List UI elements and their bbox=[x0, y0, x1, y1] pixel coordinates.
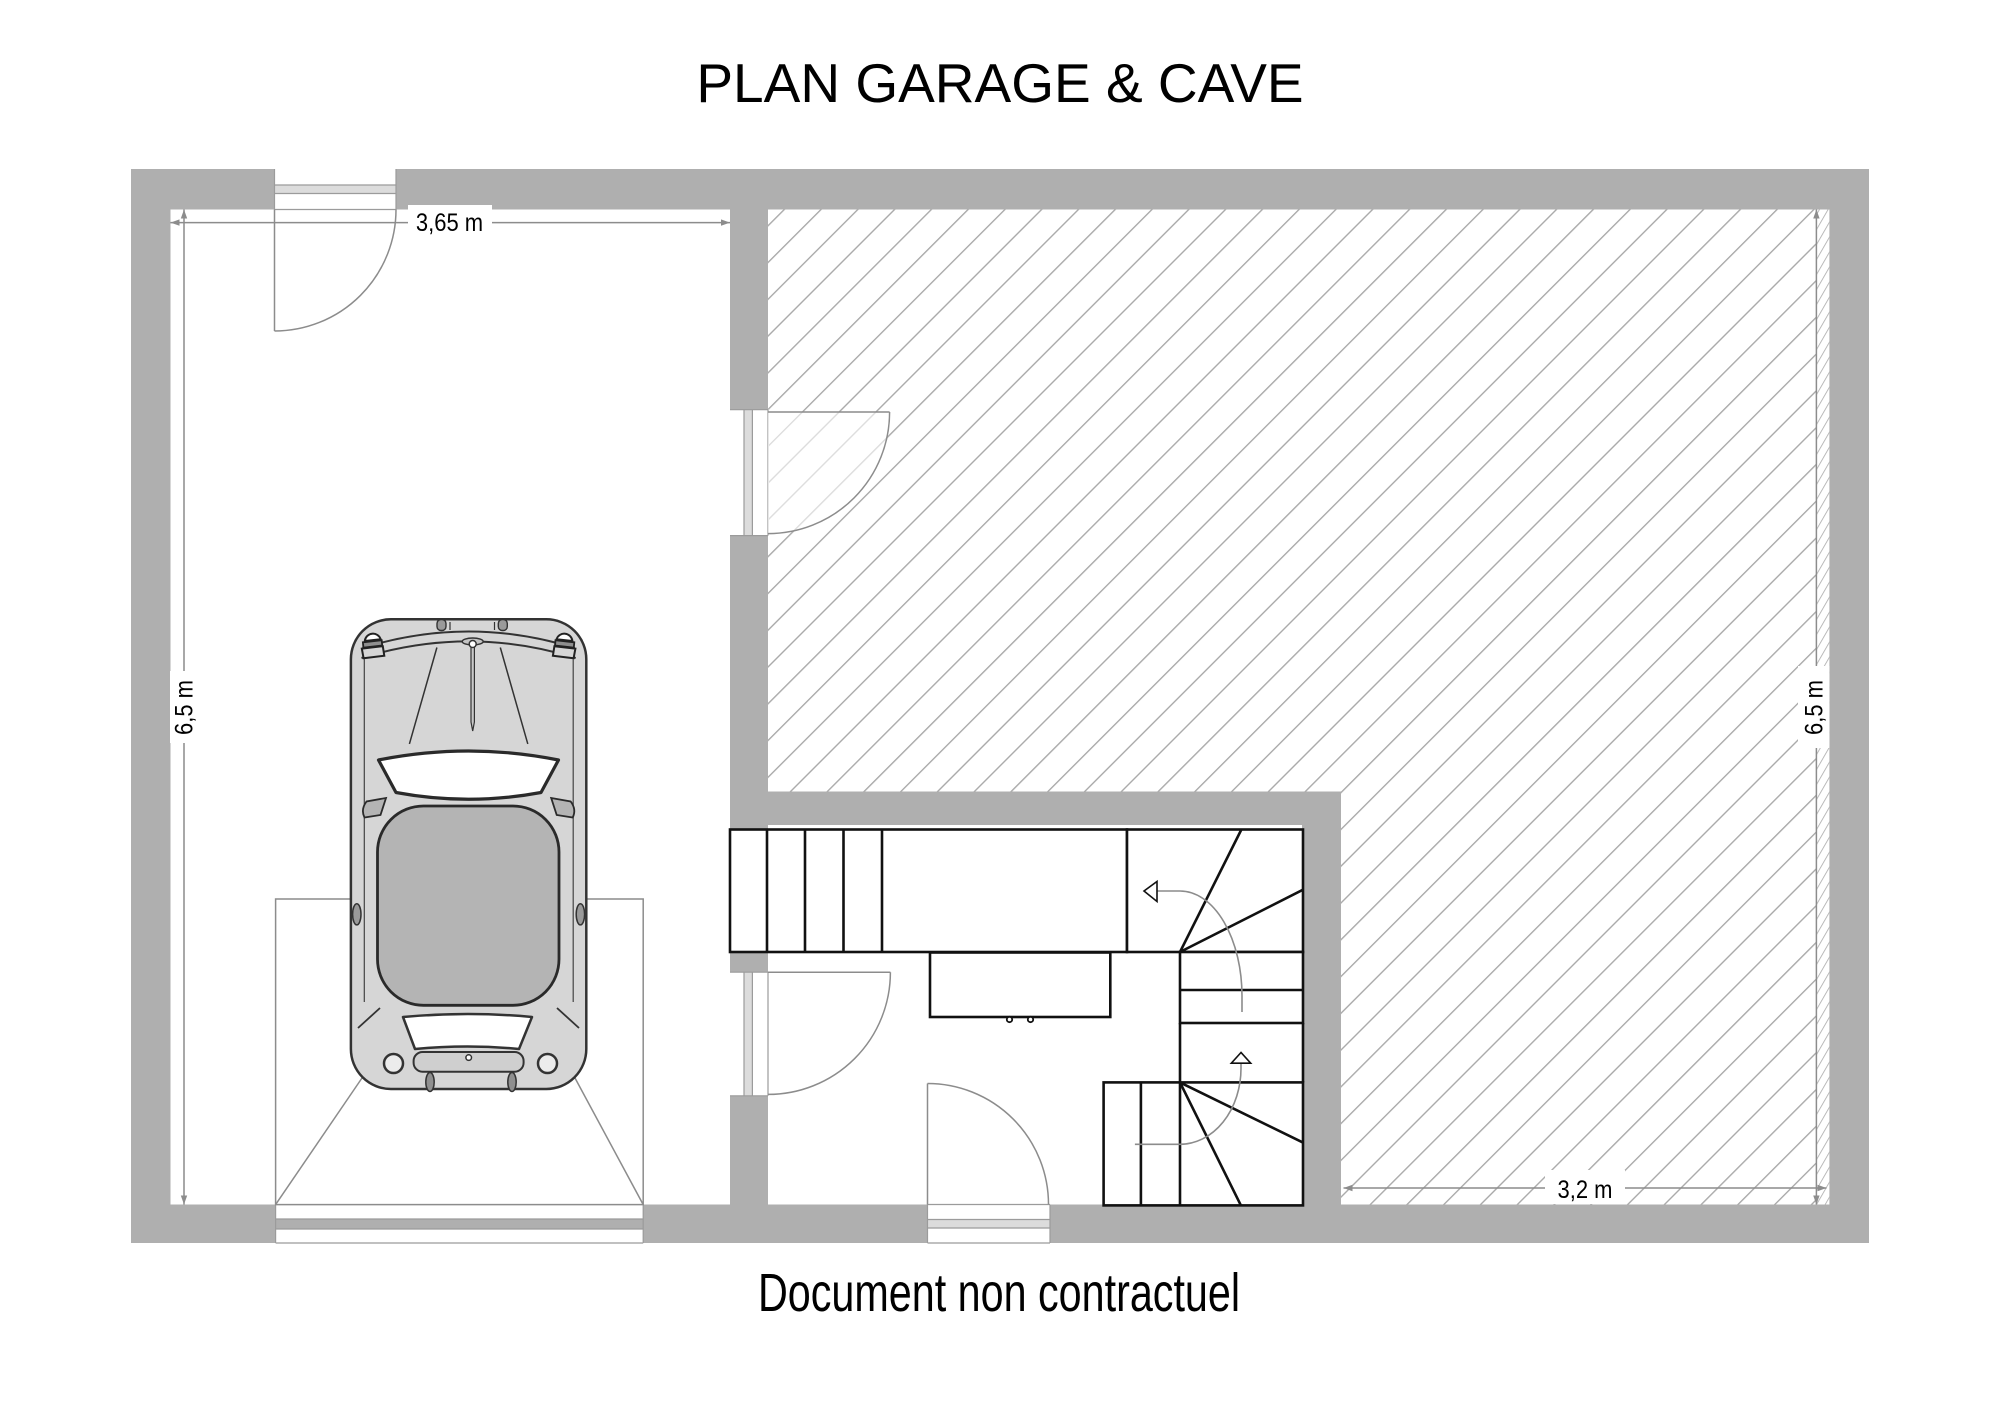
svg-text:6,5 m: 6,5 m bbox=[170, 680, 198, 735]
svg-text:6,5 m: 6,5 m bbox=[1800, 680, 1828, 735]
svg-text:PLAN GARAGE & CAVE: PLAN GARAGE & CAVE bbox=[696, 52, 1303, 114]
svg-text:Document non contractuel: Document non contractuel bbox=[758, 1263, 1240, 1324]
svg-text:3,65 m: 3,65 m bbox=[416, 209, 483, 237]
svg-text:3,2 m: 3,2 m bbox=[1558, 1176, 1613, 1204]
